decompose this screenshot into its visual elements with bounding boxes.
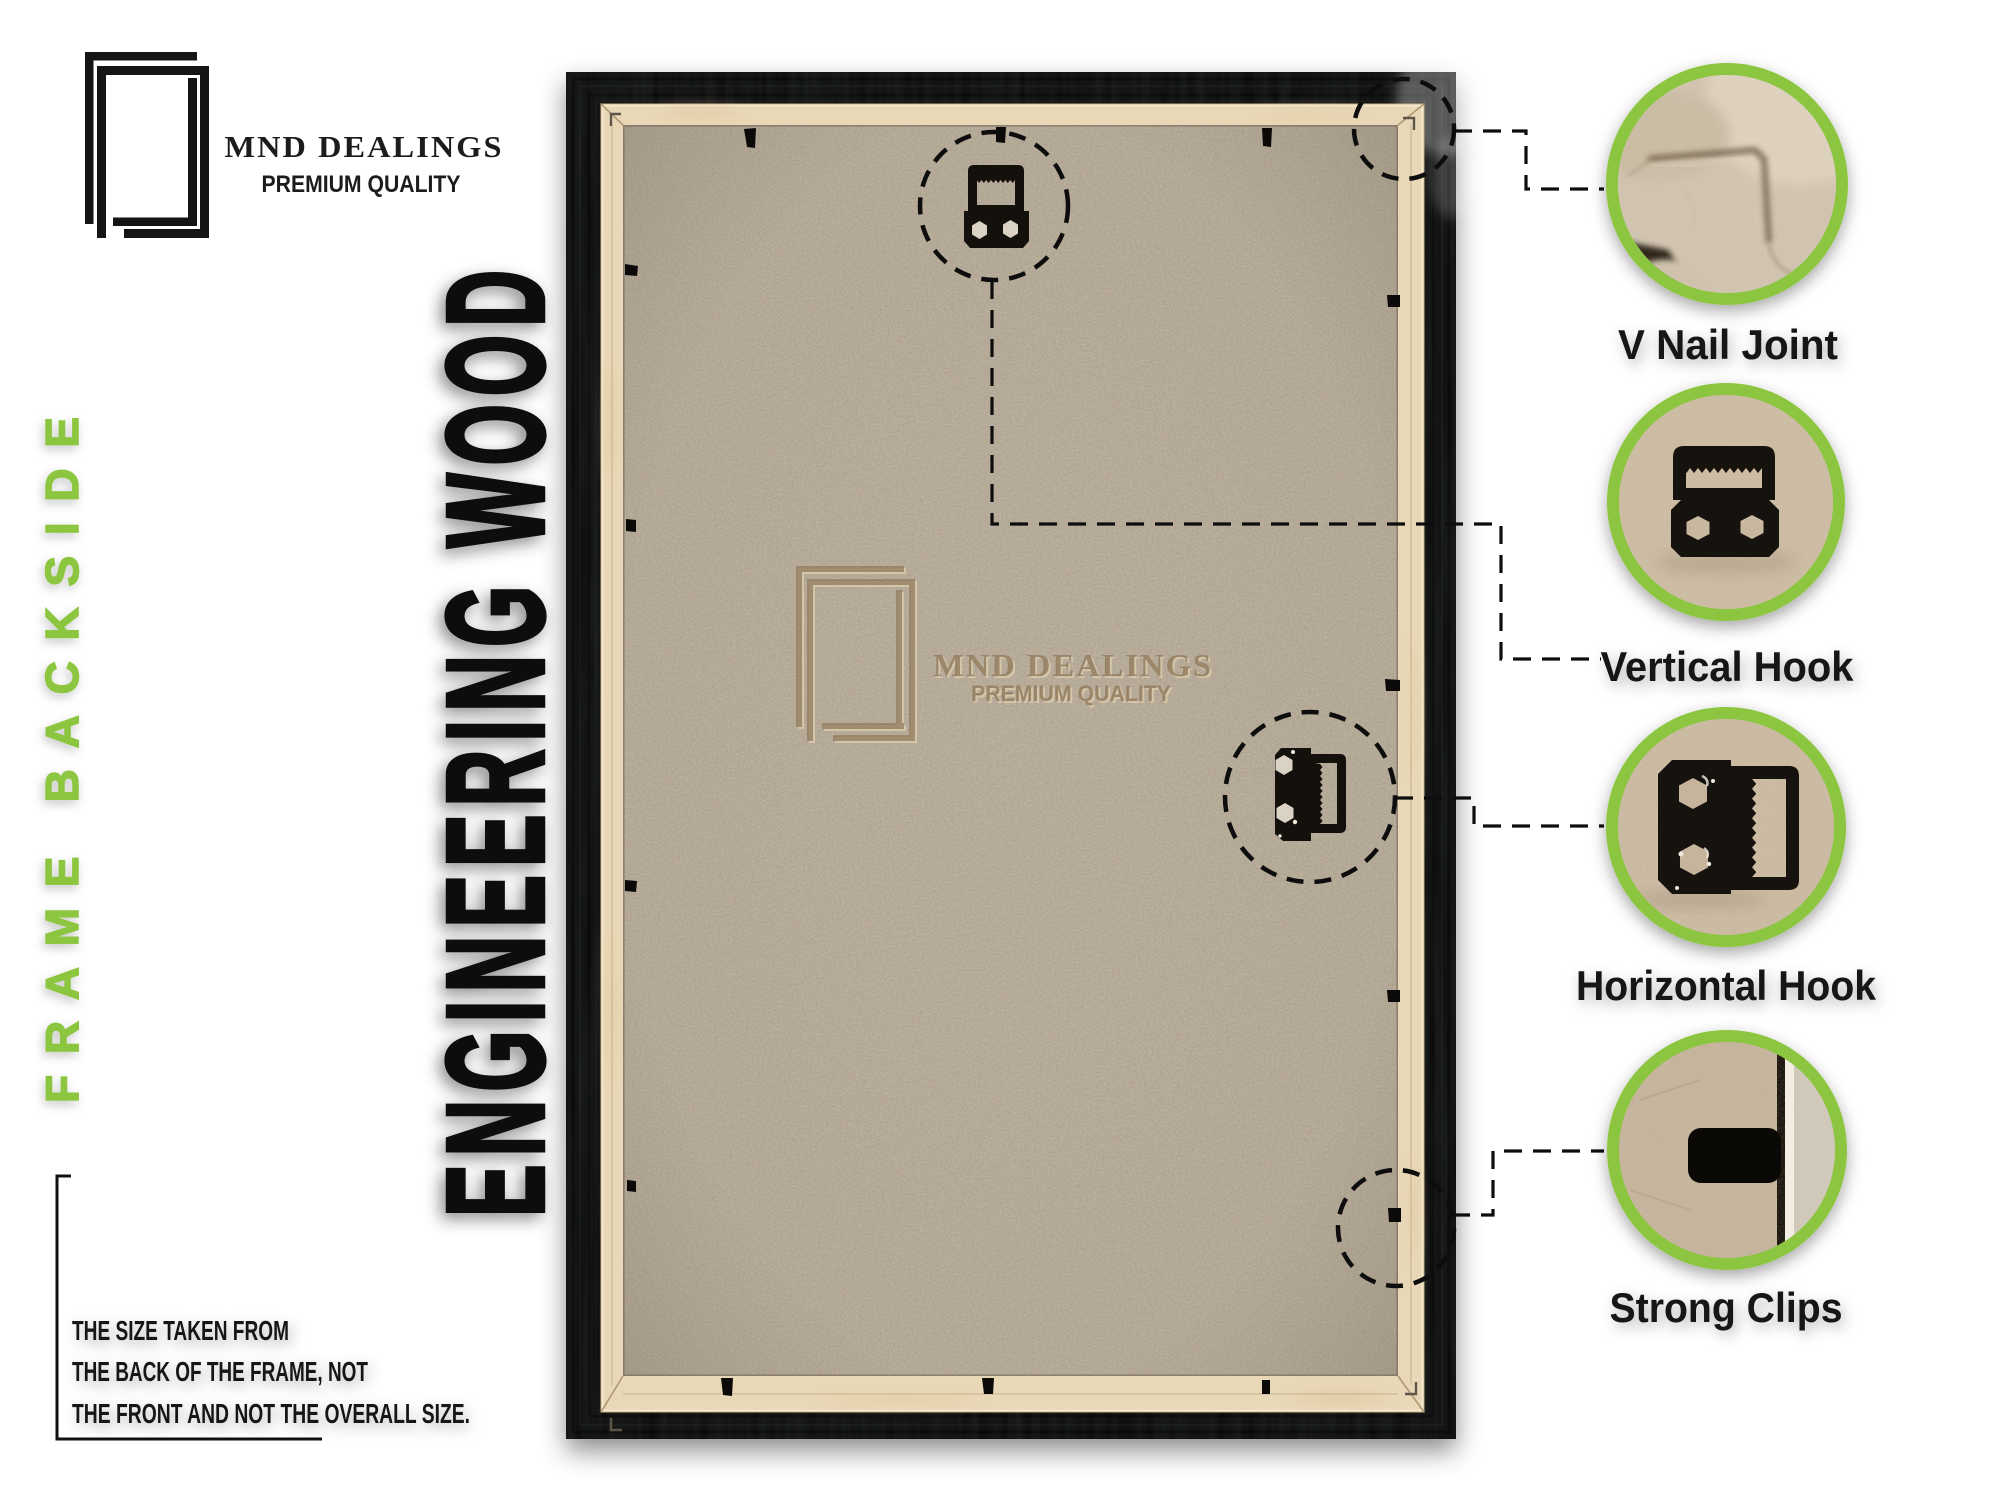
svg-text:THE BACK OF THE FRAME, NOT: THE BACK OF THE FRAME, NOT — [72, 1356, 368, 1387]
svg-text:MND DEALINGS: MND DEALINGS — [933, 647, 1213, 683]
svg-text:THE FRONT AND NOT THE OVERALL: THE FRONT AND NOT THE OVERALL SIZE. — [72, 1398, 470, 1429]
svg-text:THE SIZE TAKEN FROM: THE SIZE TAKEN FROM — [72, 1315, 289, 1346]
svg-text:PREMIUM QUALITY: PREMIUM QUALITY — [971, 681, 1171, 706]
svg-text:Strong Clips: Strong Clips — [1610, 1284, 1843, 1331]
svg-text:MND DEALINGS: MND DEALINGS — [225, 129, 504, 164]
svg-text:PREMIUM QUALITY: PREMIUM QUALITY — [262, 171, 461, 198]
svg-text:Horizontal Hook: Horizontal Hook — [1576, 962, 1877, 1009]
svg-text:V Nail Joint: V Nail Joint — [1618, 321, 1838, 368]
svg-text:Vertical Hook: Vertical Hook — [1601, 643, 1855, 690]
svg-text:ENGINEERING WOOD: ENGINEERING WOOD — [419, 262, 573, 1217]
